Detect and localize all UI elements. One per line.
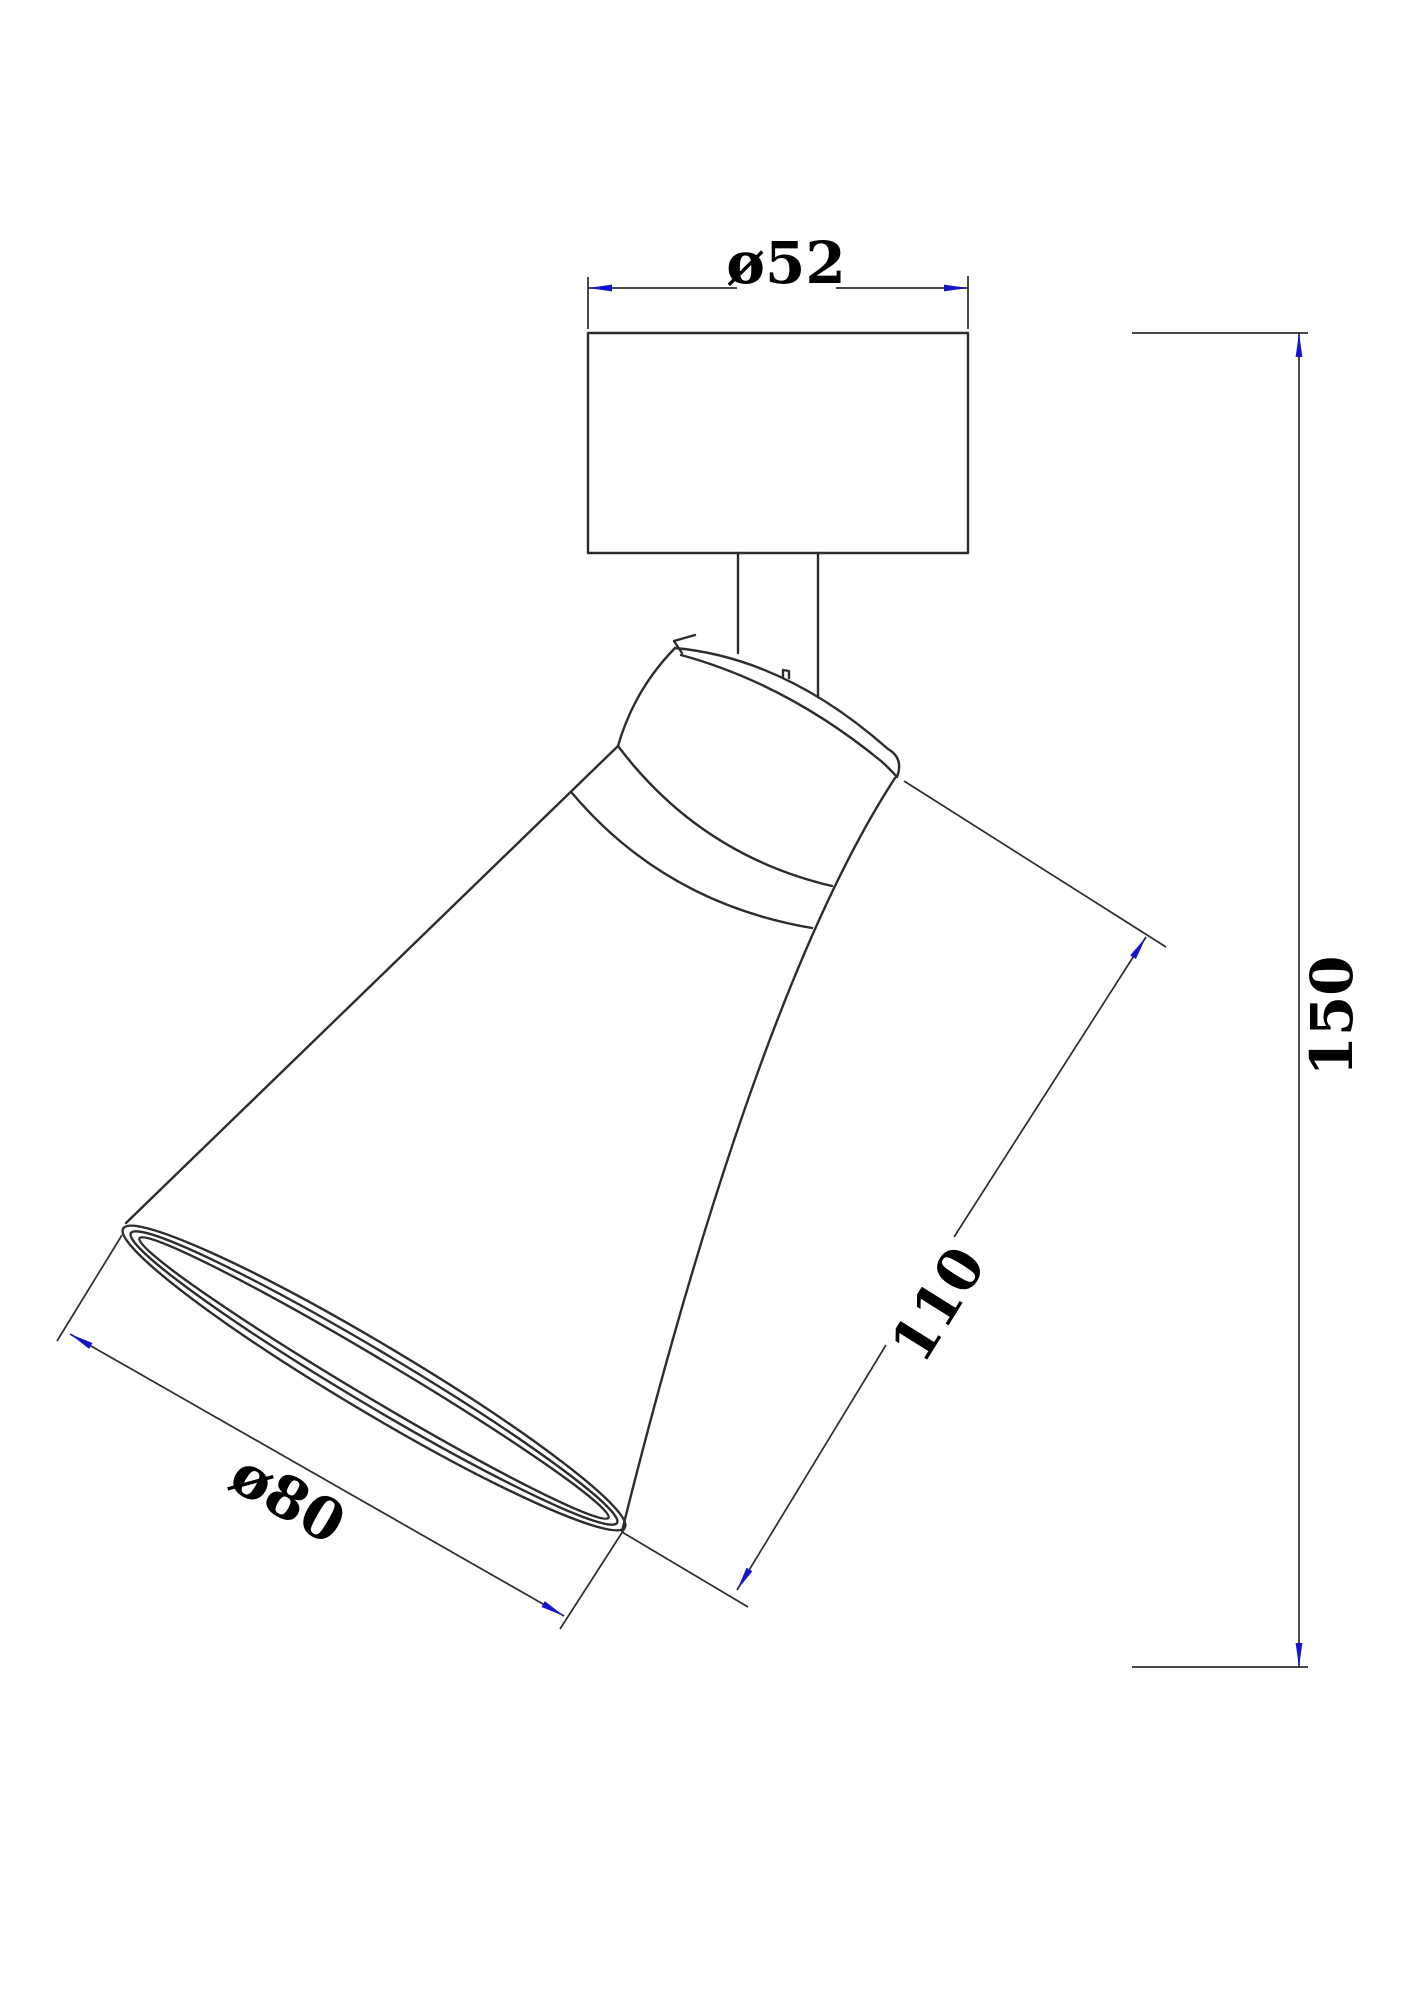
dim-label-mount-diameter: ø52 <box>726 229 845 297</box>
drawing-canvas: ø52 150 110 ø80 <box>0 0 1414 2000</box>
extension-line <box>622 1532 748 1607</box>
neck-left-silhouette <box>618 648 675 746</box>
dimension-head-length <box>622 781 1166 1607</box>
shade-opening-rim <box>106 1199 642 1556</box>
extension-line <box>560 1528 625 1629</box>
cone-right-silhouette <box>622 778 895 1531</box>
extension-line <box>904 781 1166 947</box>
cone-left-silhouette <box>126 746 618 1223</box>
rim-notch <box>783 670 789 678</box>
band-lower-edge <box>572 793 812 928</box>
dim-label-shade-diameter: ø80 <box>219 1439 356 1558</box>
spotlight-technical-drawing: ø52 150 110 ø80 <box>0 0 1414 2000</box>
mount-cylinder-outline <box>588 333 968 553</box>
dimension-line <box>954 937 1146 1237</box>
lamp-head <box>126 635 899 1531</box>
dimension-line <box>737 1345 886 1590</box>
extension-line <box>57 1235 122 1341</box>
dim-label-head-length: 110 <box>877 1235 999 1374</box>
dimension-line <box>70 1334 564 1616</box>
dimension-shade-diameter <box>57 1235 625 1629</box>
neck-rim-inner-edge <box>681 655 881 761</box>
rim-middle-ellipse <box>117 1210 630 1545</box>
rim-inner-ellipse <box>130 1221 619 1534</box>
dimension-overall-height <box>1132 333 1308 1667</box>
mount-cylinder-front-view <box>588 333 968 553</box>
neck-rim-end-cap <box>881 749 899 777</box>
dim-label-overall-height: 150 <box>1298 955 1366 1076</box>
